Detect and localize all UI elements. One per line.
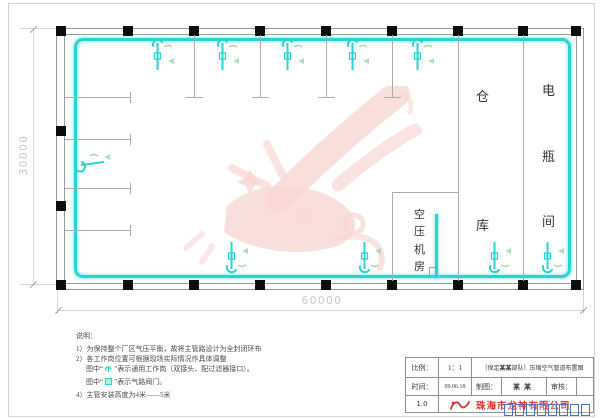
room-label-char: 房 xyxy=(412,258,427,274)
drawing-title-prefix: （保定 xyxy=(481,363,499,372)
note-line-3: 图中“”表示通用工作岗（双接头、配过滤器接口）。 xyxy=(76,364,262,374)
drawing-title-suffix: 部队）压缩空气管道布置图 xyxy=(512,363,584,372)
column-marker xyxy=(56,201,66,211)
room-label-char: 电 xyxy=(541,80,556,99)
missing-glyph-box xyxy=(548,404,557,416)
room-partition-wall xyxy=(523,35,524,281)
room-label-char: 压 xyxy=(412,223,427,239)
air-riser-station xyxy=(486,230,516,276)
dim-label-bottom: 60000 xyxy=(292,295,352,307)
dim-line-left xyxy=(33,29,34,285)
missing-glyph-box xyxy=(559,404,568,416)
missing-glyph-box xyxy=(570,404,579,416)
room-label-battery: 电瓶间 xyxy=(541,80,556,230)
partition-stub xyxy=(326,35,327,97)
compressor-feed-valve xyxy=(429,267,438,276)
partition-stub-end xyxy=(252,97,269,98)
air-drop-station xyxy=(344,36,374,82)
room-label-char: 机 xyxy=(412,241,427,257)
air-riser-station xyxy=(223,230,253,276)
note-line-4-prefix: 图中“ xyxy=(86,378,103,386)
valve-symbol-icon xyxy=(104,377,113,386)
column-marker xyxy=(518,280,528,290)
missing-glyph-box xyxy=(526,404,535,416)
room-label-compressor: 空压机房 xyxy=(412,206,427,274)
reviewer-value xyxy=(577,378,593,395)
reviewer-label: 审核： xyxy=(547,378,576,395)
note-line-3-suffix: ”表示通用工作岗（双接头、配过滤器接口）。 xyxy=(114,365,254,373)
compressor-room-wall xyxy=(392,192,458,193)
drawing-title-unit: 某某 xyxy=(499,363,511,372)
column-marker xyxy=(123,26,133,36)
air-drop-station xyxy=(279,36,309,82)
partition-stub-end xyxy=(186,97,203,98)
column-marker xyxy=(453,280,463,290)
note-line-4: 图中“”表示气路阀门。 xyxy=(76,377,262,387)
note-line-1: 1）为保持整个厂区气压平衡，故将主管路设计为全封闭环布 xyxy=(76,344,262,354)
partition-stub-end xyxy=(130,183,131,194)
scale-value: 1：1 xyxy=(439,358,471,377)
note-line-2: 2）各工作岗位置可根据现场实际情况作具体调整 xyxy=(76,354,262,364)
partition-stub-end xyxy=(130,92,131,103)
partition-stub-end xyxy=(384,97,401,98)
column-marker xyxy=(571,26,581,36)
wall-branch-station xyxy=(70,148,114,174)
column-marker xyxy=(255,280,265,290)
missing-glyph-box-row xyxy=(504,404,590,416)
company-dragon-logo-icon xyxy=(449,399,471,412)
column-marker xyxy=(123,280,133,290)
partition-stub-end xyxy=(130,225,131,236)
partition-stub-end xyxy=(130,134,131,145)
partition-stub xyxy=(260,35,261,97)
dim-extension xyxy=(20,284,57,285)
air-drop-station xyxy=(409,36,439,82)
room-partition-wall xyxy=(458,35,459,281)
dim-extension xyxy=(20,28,57,29)
drafter-name: 某某 xyxy=(502,378,546,395)
missing-glyph-box xyxy=(504,404,513,416)
scale-label: 比例： xyxy=(406,358,438,377)
room-label-char: 瓶 xyxy=(541,146,556,165)
partition-stub xyxy=(392,35,393,97)
missing-glyph-box xyxy=(515,404,524,416)
note-line-4-suffix: ”表示气路阀门。 xyxy=(114,378,166,386)
air-riser-station xyxy=(356,230,386,276)
dim-label-left: 30000 xyxy=(18,125,30,185)
drawing-title: （保定 某某 部队）压缩空气管道布置图 xyxy=(472,358,593,377)
drafter-label: 制图： xyxy=(472,378,501,395)
air-riser-station xyxy=(539,230,569,276)
note-line-3-prefix: 图中“ xyxy=(86,365,103,373)
work-station-symbol-icon xyxy=(104,364,113,373)
dim-line-bottom xyxy=(58,310,585,311)
column-marker xyxy=(56,26,66,36)
column-marker xyxy=(571,280,581,290)
version-value: 1.0 xyxy=(406,396,438,412)
partition-stub xyxy=(65,97,131,98)
notes-block: 说明： 1）为保持整个厂区气压平衡，故将主管路设计为全封闭环布 2）各工作岗位置… xyxy=(76,331,262,400)
notes-heading: 说明： xyxy=(76,331,262,344)
room-label-char: 库 xyxy=(475,215,490,234)
partition-stub xyxy=(65,139,131,140)
column-marker xyxy=(387,280,397,290)
partition-stub xyxy=(65,188,131,189)
column-marker xyxy=(189,280,199,290)
room-label-char: 空 xyxy=(412,206,427,222)
partition-stub xyxy=(65,230,131,231)
air-drop-station xyxy=(214,36,244,82)
date-value: 09.06.18 xyxy=(439,378,471,395)
missing-glyph-box xyxy=(537,404,546,416)
partition-stub-end xyxy=(318,97,335,98)
room-label-char: 间 xyxy=(541,211,556,230)
column-marker xyxy=(56,126,66,136)
air-drop-station xyxy=(149,36,179,82)
compressor-room-wall xyxy=(392,192,393,281)
note-line-5: 4）主管安装高度为4米——5米 xyxy=(76,390,262,400)
date-label: 时间： xyxy=(406,378,438,395)
column-marker xyxy=(56,280,66,290)
room-label-warehouse: 仓库 xyxy=(475,86,490,234)
room-label-char: 仓 xyxy=(475,86,490,105)
missing-glyph-box xyxy=(581,404,590,416)
column-marker xyxy=(321,280,331,290)
partition-stub xyxy=(194,35,195,97)
